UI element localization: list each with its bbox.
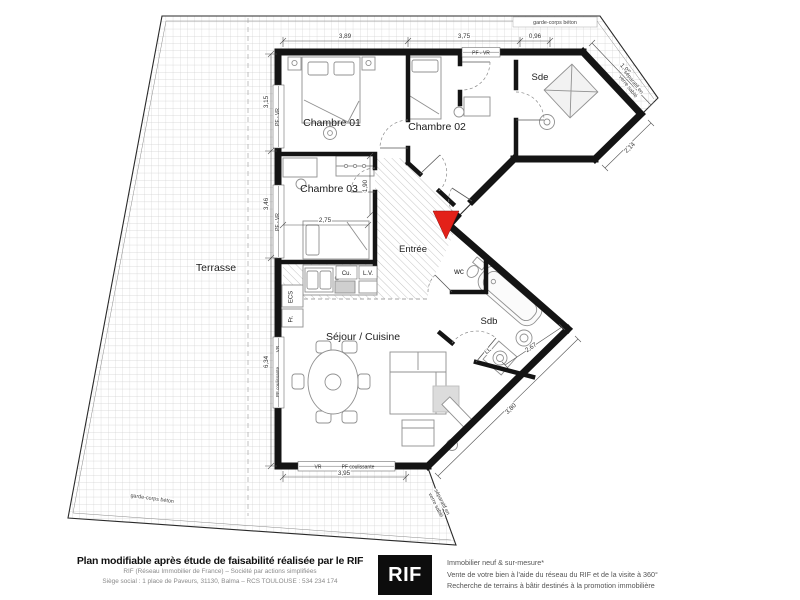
- dim-diag-sde: 2,14: [623, 141, 637, 155]
- window-label-left-4: PF coulissante: [275, 366, 280, 397]
- window-label-left-2: PF - VR: [275, 213, 281, 231]
- label-chambre03: Chambre 03: [300, 183, 358, 195]
- rif-logo-text: RIF: [388, 564, 422, 587]
- rif-logo: RIF: [378, 555, 432, 595]
- footer: Plan modifiable après étude de faisabili…: [0, 552, 800, 600]
- dim-diag-se: 3,80: [504, 402, 518, 416]
- bed-chambre02: [409, 57, 441, 119]
- dim-left-lower: 6,34: [263, 355, 270, 368]
- footer-service-1: Immobilier neuf & sur-mesure*: [447, 557, 658, 569]
- footer-address-line: Siège social : 1 place de Paveurs, 31130…: [55, 577, 385, 587]
- label-cu: Cu.: [342, 271, 352, 277]
- label-sdb: Sdb: [481, 316, 498, 327]
- label-sde: Sde: [532, 72, 549, 83]
- closet-chambre03: [336, 156, 374, 176]
- footer-service-3: Recherche de terrains à bâtir destinés à…: [447, 580, 658, 592]
- label-lv: L.V.: [363, 271, 373, 277]
- footer-company-line: RIF (Réseau Immobilier de France) – Soci…: [55, 567, 385, 577]
- floor-plan-page: PF - VR PF - VR PF - VR VR PF coulissant…: [0, 0, 800, 600]
- dim-bottom: 3,95: [338, 470, 351, 477]
- dim-top-mid: 3,75: [458, 33, 471, 40]
- dim-top-right: 0,96: [529, 33, 542, 40]
- label-chambre01: Chambre 01: [303, 117, 361, 129]
- label-entree: Entrée: [399, 244, 427, 255]
- dim-chambre03-door: 1,90: [362, 179, 369, 192]
- dim-top-left: 3,89: [339, 33, 352, 40]
- label-chambre02: Chambre 02: [408, 121, 466, 133]
- footer-title: Plan modifiable après étude de faisabili…: [55, 555, 385, 567]
- label-garde-corps-top: garde-corps béton: [533, 20, 577, 26]
- label-wc: wc: [453, 267, 464, 276]
- dim-left-upper: 3,15: [263, 95, 270, 108]
- dim-chambre03-width: 2,75: [319, 217, 332, 224]
- label-ecs: ECS: [289, 291, 295, 303]
- footer-right-block: Immobilier neuf & sur-mesure* Vente de v…: [447, 557, 658, 592]
- window-label-top: PF - VR: [472, 51, 490, 57]
- label-sejour: Séjour / Cuisine: [326, 331, 400, 343]
- label-terrasse: Terrasse: [196, 262, 236, 274]
- footer-left-block: Plan modifiable après étude de faisabili…: [55, 555, 385, 586]
- window-label-left-3: VR: [275, 345, 280, 352]
- window-label-bottom-1: VR: [315, 465, 322, 471]
- footer-service-2: Vente de votre bien à l'aide du réseau d…: [447, 569, 658, 581]
- label-fr: Fr.: [289, 315, 295, 322]
- window-label-left-1: PF - VR: [275, 108, 281, 126]
- bed-chambre03: [303, 221, 369, 259]
- dim-left-mid: 3,46: [263, 197, 270, 210]
- floor-plan: PF - VR PF - VR PF - VR VR PF coulissant…: [0, 0, 800, 552]
